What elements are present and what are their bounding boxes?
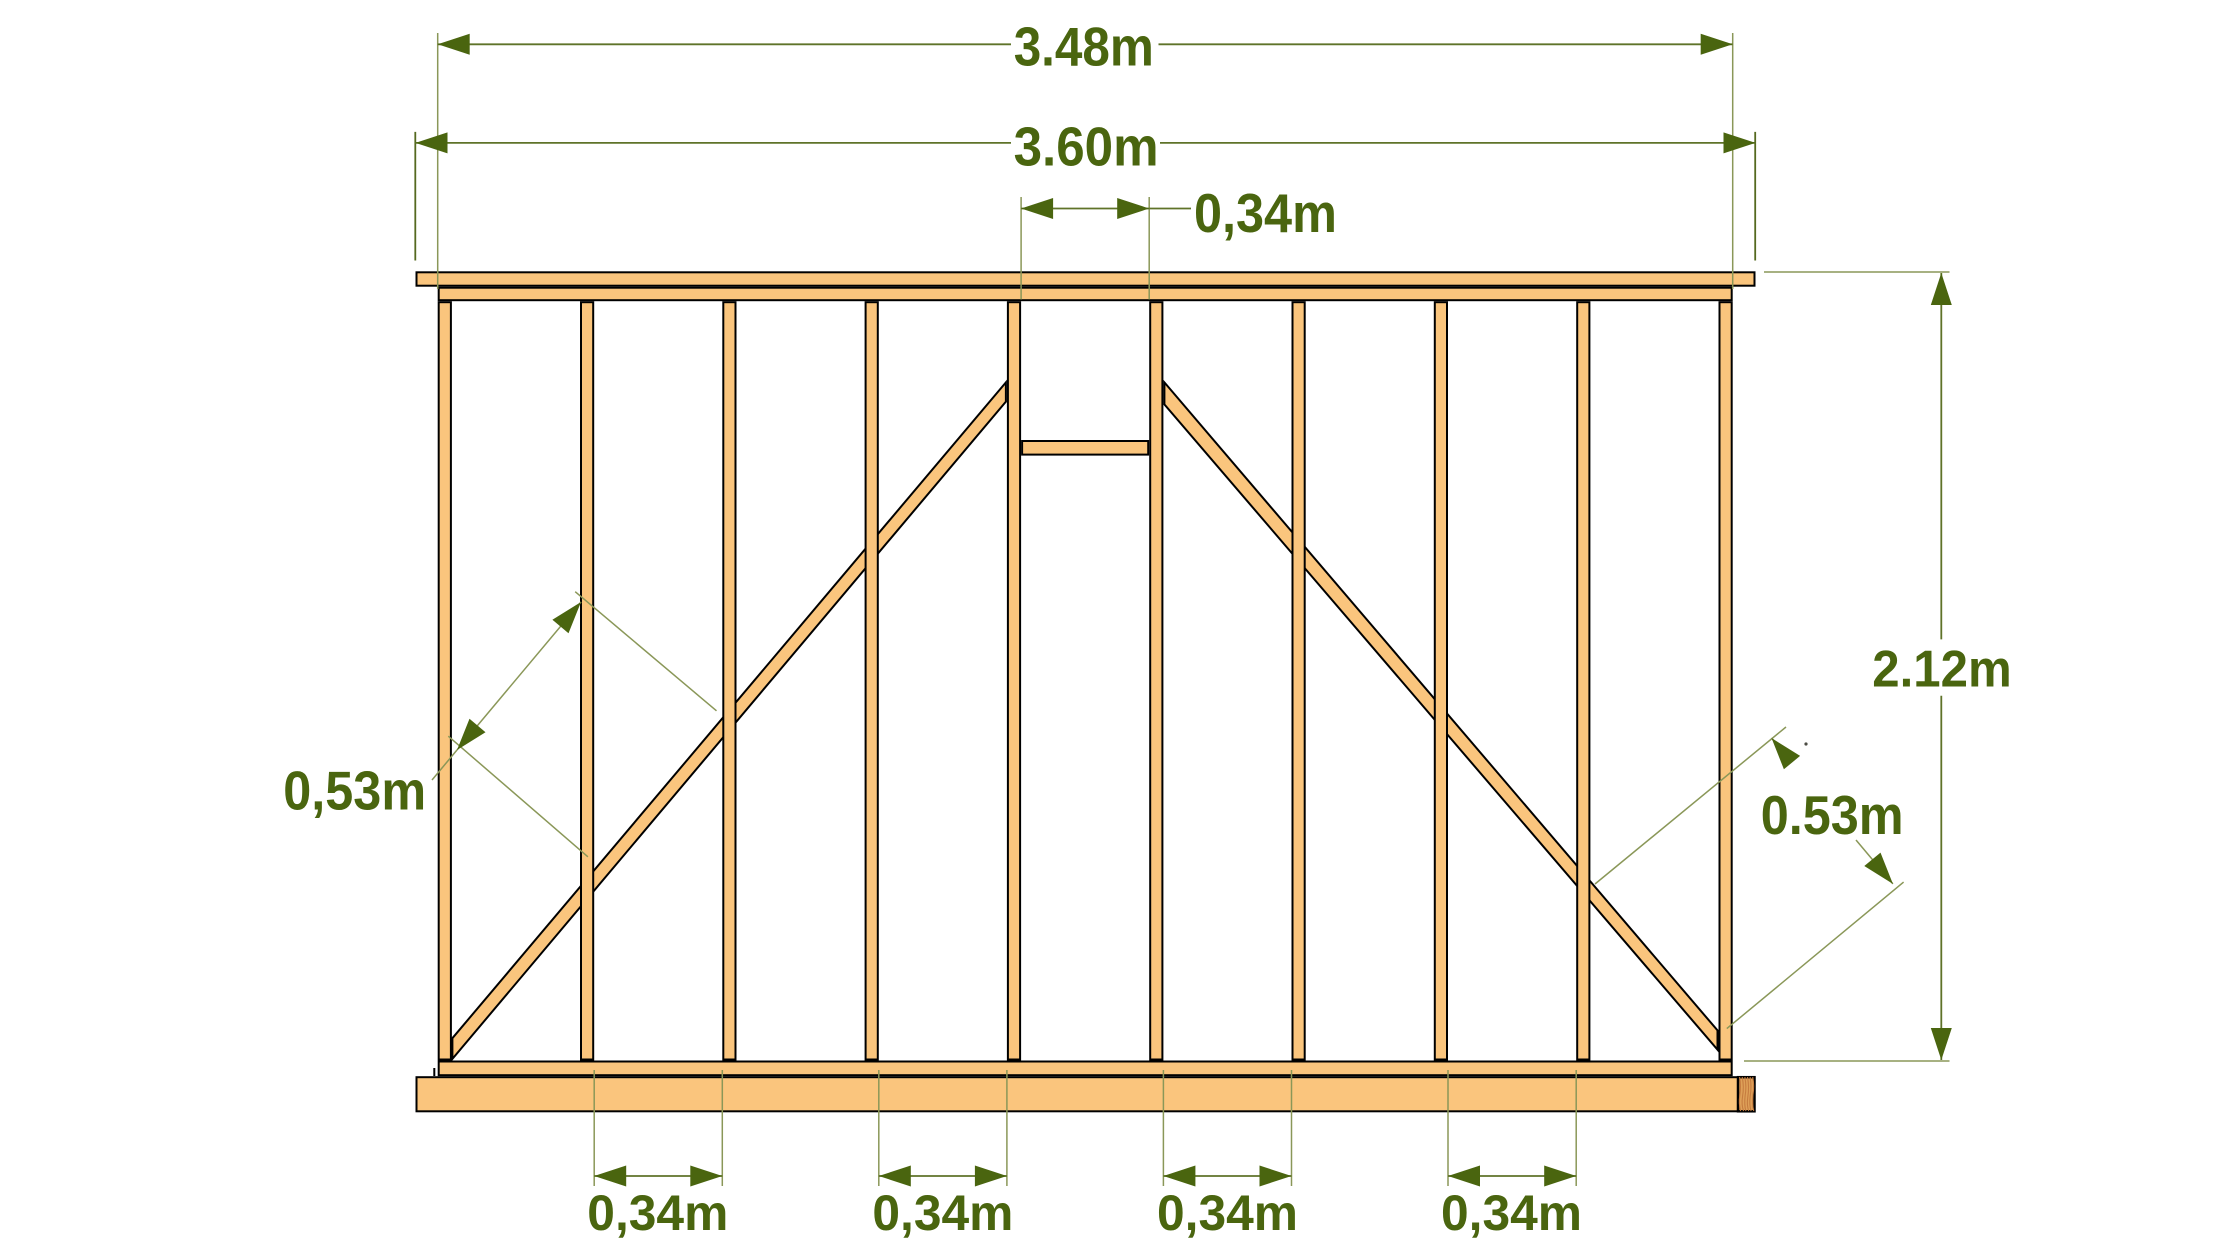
svg-text:2.12m: 2.12m	[1872, 640, 2011, 698]
svg-text:3.48m: 3.48m	[1014, 15, 1154, 77]
svg-text:0,34m: 0,34m	[587, 1185, 728, 1241]
svg-text:0,34m: 0,34m	[1194, 182, 1337, 244]
svg-text:0,53m: 0,53m	[283, 759, 426, 821]
svg-text:3.60m: 3.60m	[1014, 116, 1159, 178]
svg-text:0.53m: 0.53m	[1761, 784, 1904, 846]
svg-text:0,34m: 0,34m	[872, 1185, 1013, 1241]
svg-text:0,34m: 0,34m	[1157, 1185, 1298, 1241]
svg-text:0,34m: 0,34m	[1441, 1185, 1582, 1241]
